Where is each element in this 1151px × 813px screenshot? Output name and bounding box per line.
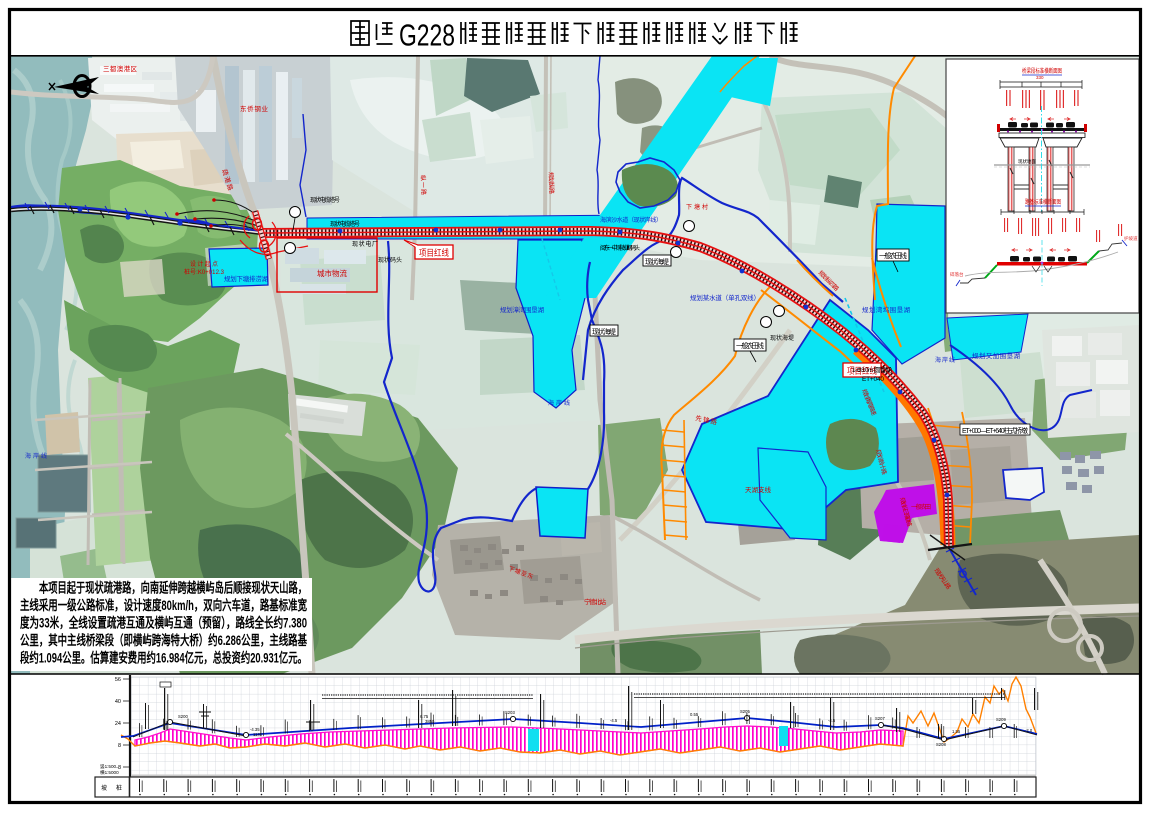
svg-text:-4.5: -4.5 xyxy=(828,718,836,723)
svg-text:现状电厂: 现状电厂 xyxy=(352,240,378,248)
svg-text:护坡道: 护坡道 xyxy=(1124,235,1138,242)
svg-text:S207: S207 xyxy=(875,716,885,721)
svg-text:现状码头: 现状码头 xyxy=(378,256,402,264)
svg-text:项目红线: 项目红线 xyxy=(419,247,449,258)
svg-text:段约1.094公里。估算建安费用约16.984亿元，总投资约: 段约1.094公里。估算建安费用约16.984亿元，总投资约20.931亿元。 xyxy=(20,650,307,666)
svg-text:桥梁段标准横断面图: 桥梁段标准横断面图 xyxy=(1022,67,1062,75)
svg-text:S205: S205 xyxy=(740,709,750,714)
svg-text:40: 40 xyxy=(115,699,121,705)
svg-text:宁德北站: 宁德北站 xyxy=(584,597,607,606)
svg-text:东侨钢业: 东侨钢业 xyxy=(240,104,269,113)
svg-text:现状海堤: 现状海堤 xyxy=(770,334,794,342)
svg-text:G228: G228 xyxy=(399,18,455,53)
svg-text:三都澳港区: 三都澳港区 xyxy=(103,64,138,73)
svg-text:330: 330 xyxy=(1036,75,1044,80)
svg-text:现状海堤: 现状海堤 xyxy=(645,257,669,266)
svg-text:坡: 坡 xyxy=(101,784,107,792)
svg-text:S208: S208 xyxy=(936,742,946,747)
svg-text:ET+000—ET+640柱式桥墩: ET+000—ET+640柱式桥墩 xyxy=(962,426,1028,435)
svg-text:天湖支线: 天湖支线 xyxy=(745,485,772,494)
svg-text:56: 56 xyxy=(115,677,121,683)
svg-text:桩号:K0+012.3: 桩号:K0+012.3 xyxy=(184,268,225,276)
svg-text:S209: S209 xyxy=(996,717,1006,722)
svg-text:现状电缆塔号: 现状电缆塔号 xyxy=(330,220,360,228)
svg-text:桩: 桩 xyxy=(116,784,122,792)
svg-text:本项目起于现状疏港路，向南延伸跨越横屿岛后顺接现状天山路，: 本项目起于现状疏港路，向南延伸跨越横屿岛后顺接现状天山路， xyxy=(39,580,307,596)
svg-text:规划又加围垦湖: 规划又加围垦湖 xyxy=(972,351,1021,360)
svg-text:海岸线: 海岸线 xyxy=(935,356,955,364)
svg-text:一般农田线: 一般农田线 xyxy=(879,251,907,260)
svg-text:规划漳湾围垦湖: 规划漳湾围垦湖 xyxy=(500,305,545,314)
svg-text:8: 8 xyxy=(118,743,121,749)
svg-text:下塘村: 下塘村 xyxy=(686,203,708,211)
svg-text:城市物流: 城市物流 xyxy=(317,268,348,278)
svg-text:竖1:500: 竖1:500 xyxy=(100,763,117,769)
svg-text:1.55: 1.55 xyxy=(952,729,961,734)
svg-text:设计起点: 设计起点 xyxy=(190,260,218,268)
svg-text:海滨沙水道（现状岸线）: 海滨沙水道（现状岸线） xyxy=(600,216,662,224)
svg-text:碎落台: 碎落台 xyxy=(950,271,964,278)
svg-text:度为33米，全线设置疏港互通及横屿互通（预留），路线全长约7: 度为33米，全线设置疏港互通及横屿互通（预留），路线全长约7.380 xyxy=(20,615,307,631)
svg-text:路基标准横断面图: 路基标准横断面图 xyxy=(1025,198,1061,206)
svg-text:-4.5: -4.5 xyxy=(610,718,618,723)
svg-text:规划某水道（单孔双线）: 规划某水道（单孔双线） xyxy=(690,293,760,302)
svg-text:现状海堤: 现状海堤 xyxy=(592,327,616,336)
svg-text:规划湾坞围垦湖: 规划湾坞围垦湖 xyxy=(862,305,911,314)
svg-text:24: 24 xyxy=(115,721,121,727)
svg-text:现状地面: 现状地面 xyxy=(1018,158,1036,165)
svg-text:-2.0: -2.0 xyxy=(1025,728,1033,733)
svg-text:横1:5000: 横1:5000 xyxy=(100,769,119,776)
svg-text:海岸线: 海岸线 xyxy=(548,399,570,407)
svg-text:一般农田: 一般农田 xyxy=(911,503,931,511)
svg-text:1-Φ3.0m 圆管涵: 1-Φ3.0m 圆管涵 xyxy=(852,365,892,374)
svg-text:S200: S200 xyxy=(178,714,188,719)
svg-text:规划下塘排涝湖: 规划下塘排涝湖 xyxy=(224,274,269,283)
svg-text:公里，其中主线桥梁段（即横屿跨海特大桥）约6.286公里，主: 公里，其中主线桥梁段（即横屿跨海特大桥）约6.286公里，主线路基 xyxy=(20,632,307,648)
svg-text:一般农田线: 一般农田线 xyxy=(736,341,764,350)
svg-text:现状电缆塔号: 现状电缆塔号 xyxy=(310,196,340,204)
svg-text:ET+040: ET+040 xyxy=(862,376,884,383)
svg-text:闽东一中铜陵业II期码头: 闽东一中铜陵业II期码头 xyxy=(600,244,640,252)
svg-text:0.55: 0.55 xyxy=(690,712,699,717)
svg-text:主线采用一级公路标准，设计速度80km/h，双向六车道，路基: 主线采用一级公路标准，设计速度80km/h，双向六车道，路基标准宽 xyxy=(20,597,307,613)
svg-text:海岸线: 海岸线 xyxy=(25,452,47,460)
